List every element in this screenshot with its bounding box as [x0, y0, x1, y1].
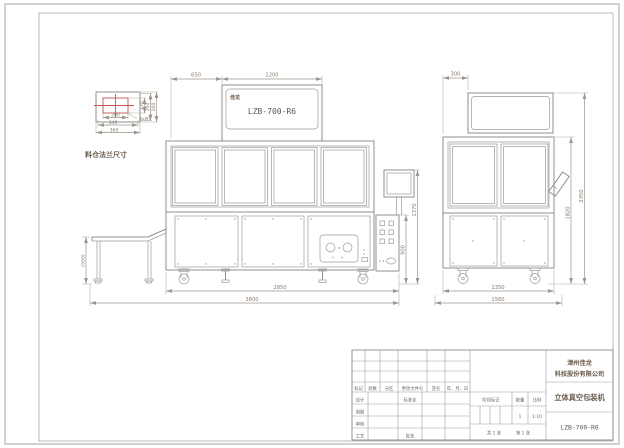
side-monitor-tilted	[549, 172, 569, 196]
dim-1350: 1350	[491, 285, 504, 291]
switch-oval	[387, 258, 396, 264]
side-view: 300	[435, 72, 588, 307]
drawing-model-number: LZB-700-R6	[560, 424, 599, 432]
dim-650: 650	[191, 73, 201, 79]
col-mark: 标记	[354, 385, 363, 392]
row-design: 设计	[356, 397, 365, 404]
gauge-panel	[320, 235, 368, 262]
brand-logo-text: 佳龙	[230, 94, 240, 101]
side-top-panel	[468, 93, 553, 133]
dim-2850: 2850	[273, 285, 286, 291]
cad-drawing-canvas: 200 340 360 120 240 260 8xØ7 料仓法兰尺寸 650 …	[0, 0, 624, 448]
detail-view-hopper-flange: 200 340 360 120 240 260 8xØ7 料仓法兰尺寸	[85, 92, 158, 159]
dim-1820: 1820	[566, 206, 572, 219]
control-pedestal	[376, 170, 414, 271]
monitor	[384, 170, 414, 197]
col-count: 处数	[368, 385, 377, 392]
col-date: 年、月、日	[447, 385, 468, 392]
monitor-screen	[387, 173, 411, 194]
qty-value: 1	[519, 414, 522, 420]
col-zone: 分区	[385, 385, 394, 392]
front-casters-feet	[179, 269, 368, 284]
front-lower-cabinet	[166, 212, 374, 270]
company-name-line1: 漳州佳龙	[567, 359, 593, 367]
scale-value: 1:10	[532, 414, 542, 420]
dim-200: 200	[111, 113, 120, 119]
dim-2350: 2350	[579, 189, 585, 202]
cell-standardize: 标准化	[404, 397, 418, 404]
dim-3600: 3600	[245, 297, 258, 303]
side-lower-cabinet	[443, 213, 554, 268]
dim-340: 340	[109, 120, 118, 126]
machine-model-label: LZB-700-R6	[248, 107, 296, 116]
control-buttons	[380, 221, 394, 244]
col-doc: 更改文件号	[402, 385, 423, 392]
scale-label: 比例	[533, 397, 542, 404]
front-window-frame	[166, 141, 374, 212]
front-window-inner-frame	[171, 146, 369, 207]
dim-300: 300	[451, 72, 461, 78]
dim-360: 360	[110, 127, 119, 133]
row-draft: 制图	[356, 409, 365, 416]
dim-120: 120	[139, 101, 145, 110]
stage-label: 阶段标记	[482, 397, 500, 404]
row-process: 工艺	[356, 434, 365, 440]
side-casters	[458, 268, 540, 284]
gauge-dial-left	[326, 243, 335, 252]
col-sign: 签名	[432, 385, 441, 392]
product-name: 立体真空包装机	[554, 393, 605, 402]
cell-approve: 批准	[406, 433, 415, 440]
dim-900: 900	[401, 245, 407, 255]
sheet-outer-border	[5, 4, 619, 444]
dim-240: 240	[145, 103, 151, 112]
control-box	[376, 215, 399, 271]
dim-560: (560)	[81, 254, 87, 267]
infeed-conveyor	[92, 229, 166, 283]
sheet-inner-frame	[39, 13, 613, 441]
gauge-dial-right	[343, 243, 352, 252]
dim-1560: 1560	[491, 297, 504, 303]
dim-1370: 1370	[412, 203, 418, 216]
dim-260: 260	[151, 103, 157, 112]
title-block: 标记 处数 分区 更改文件号 签名 年、月、日 设计 制图 审核 工艺 标准化 …	[352, 350, 613, 440]
dim-bolt-holes: 8xØ7	[139, 116, 151, 123]
side-window-frame	[443, 137, 554, 213]
front-window-panes	[173, 148, 367, 206]
detail-view-label: 料仓法兰尺寸	[85, 150, 127, 159]
front-view: 650 1200 佳龙 LZB-700-R6	[81, 73, 421, 307]
row-check: 审核	[356, 421, 365, 428]
qty-label: 数量	[516, 397, 525, 404]
sheet-number: 第 1 张	[516, 430, 531, 437]
sheet-total: 共 1 张	[487, 430, 502, 437]
dim-1200: 1200	[265, 73, 278, 79]
company-name-line2: 科技股份有限公司	[555, 370, 605, 378]
drawing-page: 200 340 360 120 240 260 8xØ7 料仓法兰尺寸 650 …	[0, 0, 624, 448]
side-doors	[450, 216, 548, 266]
front-doors	[175, 216, 370, 267]
